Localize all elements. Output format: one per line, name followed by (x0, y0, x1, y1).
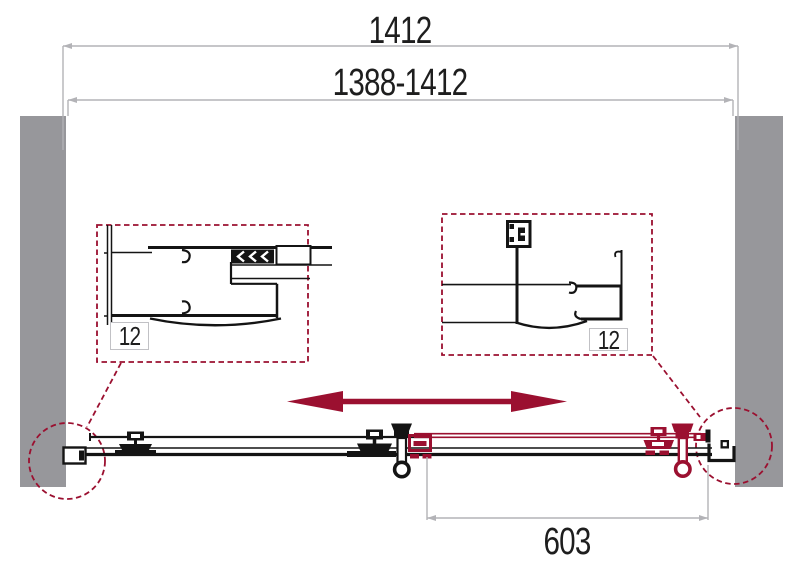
dimension-label-overall-width: 1412 (322, 12, 478, 50)
diagram-canvas: 1412 1388-1412 603 12 12 (0, 0, 800, 569)
right-detail-leader (653, 356, 700, 417)
track-assembly (64, 424, 735, 477)
right-wall (735, 116, 783, 487)
left-profile-adjustment-label: 12 (110, 322, 149, 350)
center-roller-bracket (347, 430, 396, 458)
dimension-603 (427, 457, 708, 521)
left-inset-profile-section (104, 225, 332, 325)
right-profile-adjustment-label: 12 (589, 328, 628, 351)
slide-direction-arrow-icon (287, 391, 567, 412)
right-wall-bracket (706, 430, 735, 461)
door-knob-red (672, 424, 694, 477)
left-wall (20, 116, 66, 487)
sliding-panel-end-cap (694, 433, 706, 441)
dimension-label-door-panel-width: 603 (489, 523, 645, 561)
right-inset-profile-section (442, 222, 622, 328)
dimension-label-adjustable-range: 1388-1412 (322, 64, 478, 102)
left-detail-leader (87, 363, 121, 427)
left-wall-bracket (64, 448, 86, 464)
left-roller-bracket (115, 432, 156, 456)
right-roller-bracket (644, 427, 675, 455)
